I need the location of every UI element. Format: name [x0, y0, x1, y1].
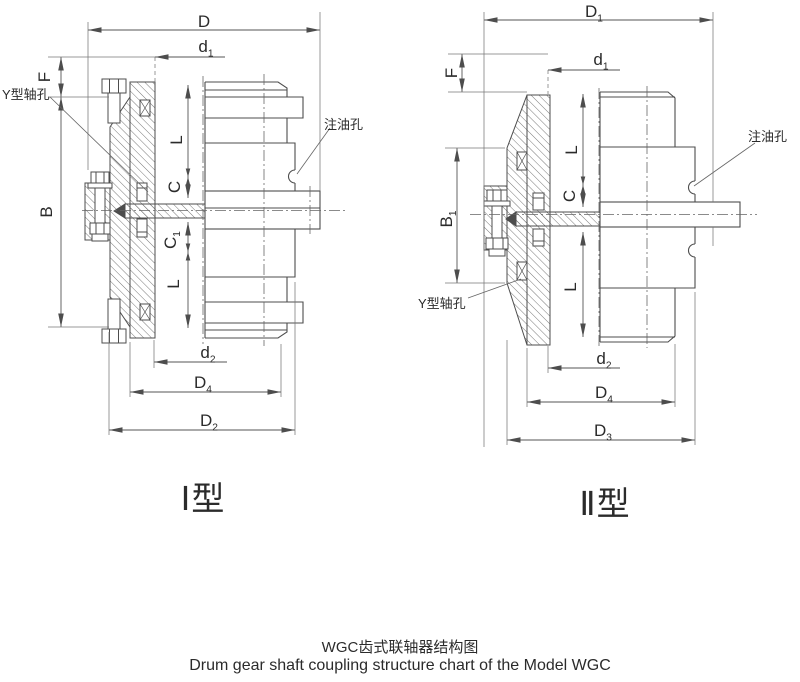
- type1-drum-outline: [205, 82, 320, 338]
- dim-label-D2: D2: [200, 411, 218, 433]
- dim-label-L-top-left: L: [167, 135, 187, 144]
- annotation-oil-hole-left: 注油孔: [324, 114, 363, 133]
- dim-label-d2-right: d2: [596, 349, 611, 371]
- caption-english: Drum gear shaft coupling structure chart…: [189, 657, 611, 675]
- coupling-drawing-svg: [0, 0, 800, 682]
- dim-label-F-right: F: [442, 68, 462, 78]
- dim-label-D1: D1: [585, 2, 603, 24]
- dim-label-d2-left: d2: [200, 343, 215, 365]
- dim-label-D: D: [198, 12, 210, 32]
- caption-chinese: WGC齿式联轴器结构图: [322, 636, 479, 657]
- annotation-oil-hole-right: 注油孔: [748, 126, 787, 145]
- dim-label-L-bottom-left: L: [164, 279, 184, 288]
- dim-label-d1-left: d1: [198, 37, 213, 59]
- dim-label-C-left: C: [165, 181, 185, 193]
- dim-label-B1: B1: [437, 210, 459, 227]
- technical-drawing-page: D d1 F B L C C1 L Y型轴孔 注油孔 d2 D4 D2 Ⅰ型 D…: [0, 0, 800, 682]
- annotation-y-shaft-hole-right: Y型轴孔: [418, 293, 466, 312]
- dim-label-L-bottom-right: L: [561, 282, 581, 291]
- dim-label-D4-right: D4: [595, 383, 613, 405]
- dim-label-L-top-right: L: [562, 145, 582, 154]
- dim-label-C-right: C: [560, 190, 580, 202]
- dim-label-D3: D3: [594, 421, 612, 443]
- annotation-y-shaft-hole-left: Y型轴孔: [2, 84, 50, 103]
- dim-label-d1-right: d1: [593, 50, 608, 72]
- type2-drum-outline: [600, 92, 740, 342]
- dim-label-B: B: [37, 206, 57, 217]
- oil-hole-right-diagram: [689, 181, 696, 194]
- dim-label-C1: C1: [161, 231, 183, 249]
- dim-label-F-left: F: [35, 72, 55, 82]
- oil-hole-left-diagram: [289, 170, 296, 183]
- type1-label: Ⅰ型: [181, 472, 226, 520]
- type2-label: Ⅱ型: [579, 477, 630, 525]
- dim-label-D4-left: D4: [194, 373, 212, 395]
